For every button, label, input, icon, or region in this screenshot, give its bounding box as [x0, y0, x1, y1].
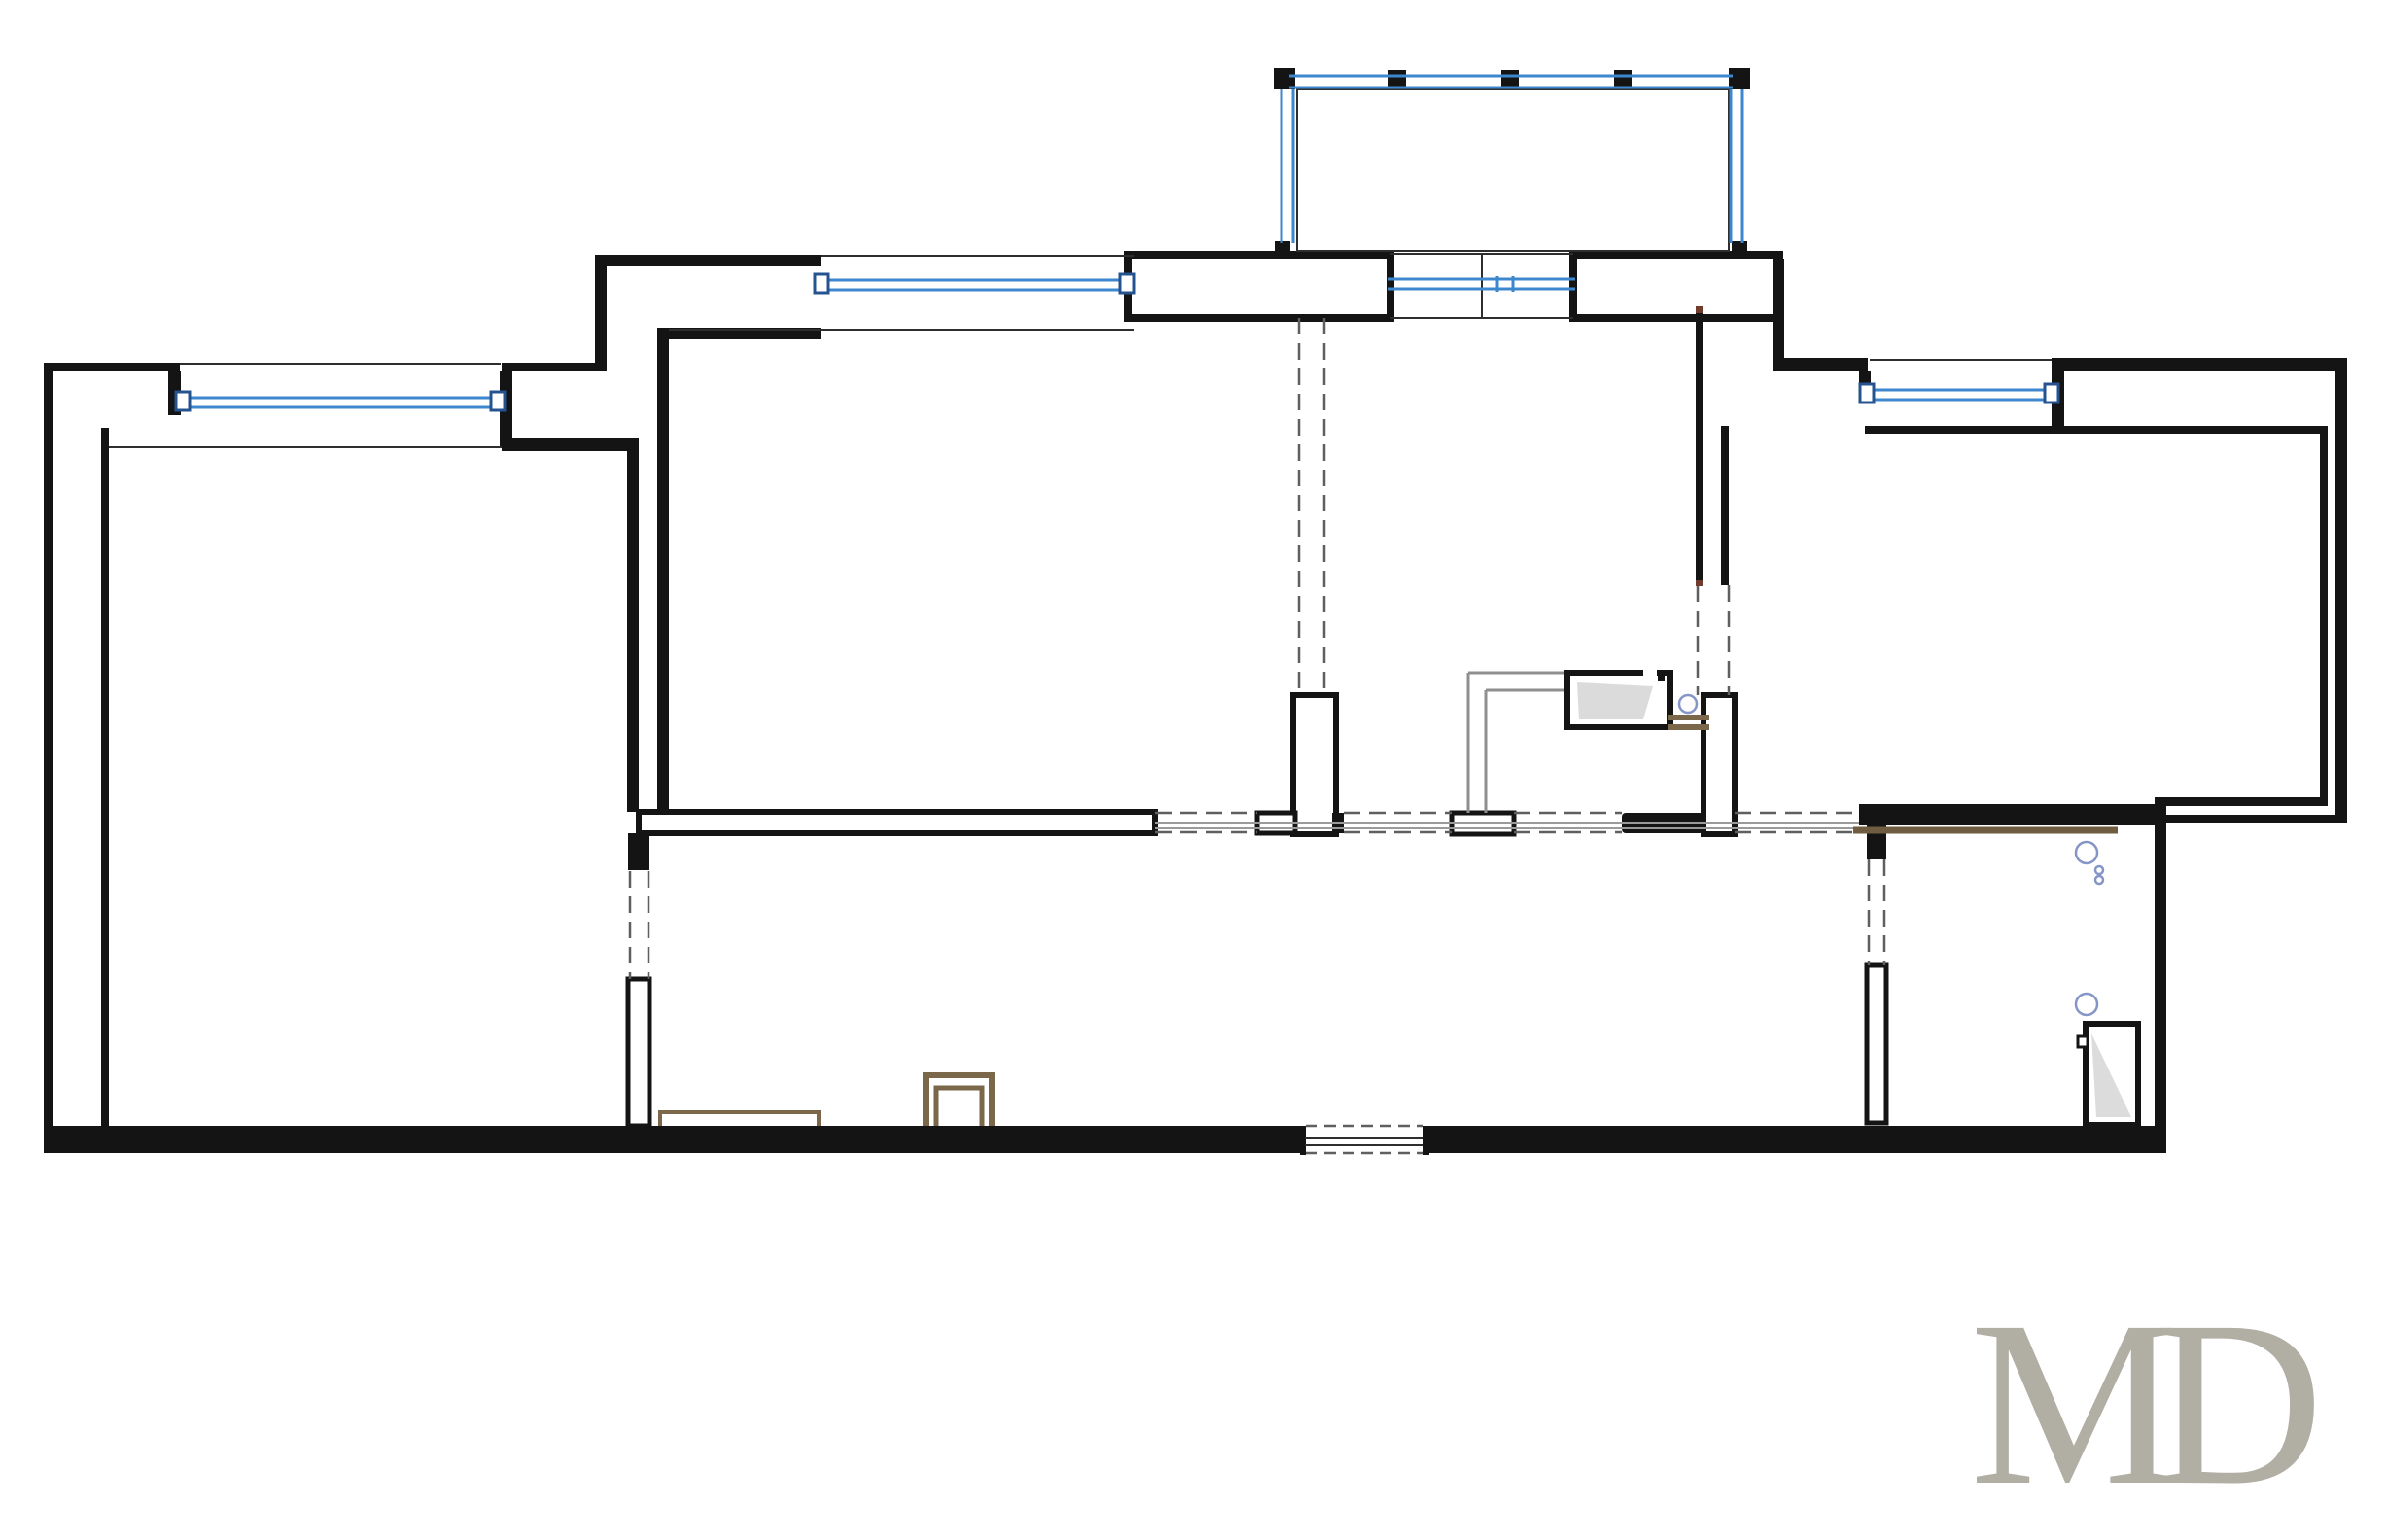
symbol-circle-bath-4 [2076, 994, 2097, 1015]
balcony-post-7 [1732, 241, 1747, 255]
roomA-right-wall [627, 451, 639, 812]
wall-step-vertical [595, 255, 607, 371]
pier-mid [1293, 695, 1336, 834]
entry-jamb-left [1300, 1126, 1306, 1155]
window2-end-left [815, 274, 828, 293]
roomE-nw-wall [1773, 259, 1784, 369]
wall-topleft-band [44, 363, 180, 371]
roomB-top-band [595, 255, 821, 266]
bath-door-leaf [1867, 965, 1886, 1123]
roomE-bottom-outer [2155, 815, 2347, 823]
balcony-slab-outline [1297, 89, 1729, 251]
roomA-right-block1 [628, 833, 649, 870]
wall-left-inner [101, 428, 109, 1126]
bath-right-wall [2155, 825, 2166, 1153]
roomB-left-wall [657, 328, 669, 812]
floorplan-page: MD [0, 0, 2387, 1540]
roomA-right-block2 [628, 979, 649, 1126]
symbol-circle-bath-2 [2095, 866, 2103, 874]
entry-jamb-right [1423, 1126, 1429, 1155]
roomE-inner-top-line [1865, 426, 2322, 434]
wall-right-outer [2335, 358, 2347, 823]
roomA-ne-stub [502, 438, 639, 451]
spandrel-wall-left [1128, 255, 1390, 318]
bath-heater-notch [2078, 1036, 2088, 1047]
door-mark-bottom [1696, 580, 1703, 586]
sink-shade [1577, 682, 1653, 719]
wall-right-inner [2320, 426, 2328, 806]
balcony-post-3 [1501, 70, 1519, 87]
spandrel-wall-right [1573, 255, 1779, 318]
symbol-circle-bath-1 [2076, 842, 2097, 863]
roomC-right-wall-b [1721, 426, 1729, 585]
balcony-post-4 [1614, 70, 1632, 87]
balcony-post-2 [1388, 70, 1406, 87]
sink-notch-block [1658, 674, 1665, 681]
bottom-wall-left [44, 1126, 1300, 1153]
kitchen-bar-2 [1668, 724, 1709, 730]
window1-end-left [176, 392, 190, 410]
roomE-top-right-band [2052, 358, 2347, 371]
roomC-right-wall-a [1696, 313, 1703, 585]
brand-logo: MD [1970, 1285, 2297, 1522]
roomB-bottom-wall [639, 812, 1155, 833]
sink-notch [1643, 668, 1657, 679]
roomE-top-left-band [1773, 358, 1868, 371]
roomE-bottom-inner [2155, 797, 2324, 806]
bottom-wall-right [1429, 1126, 2166, 1153]
wardrobe-line [660, 1112, 819, 1126]
window3-end-left [1860, 384, 1874, 402]
symbol-circle-bath-3 [2095, 876, 2103, 884]
wall-topA-band [502, 363, 607, 371]
bath-top-wall [1859, 804, 2166, 825]
kitchen-bar-1 [1668, 715, 1709, 720]
window1-end-right [491, 392, 505, 410]
desk-inner [936, 1088, 982, 1126]
window3-end-right [2045, 384, 2058, 402]
symbol-circle-kitchen [1679, 695, 1697, 713]
door-mark-top [1696, 306, 1703, 313]
wall-left-outer [44, 363, 53, 1153]
balcony-post-6 [1275, 241, 1290, 255]
window2-end-right [1120, 274, 1134, 293]
